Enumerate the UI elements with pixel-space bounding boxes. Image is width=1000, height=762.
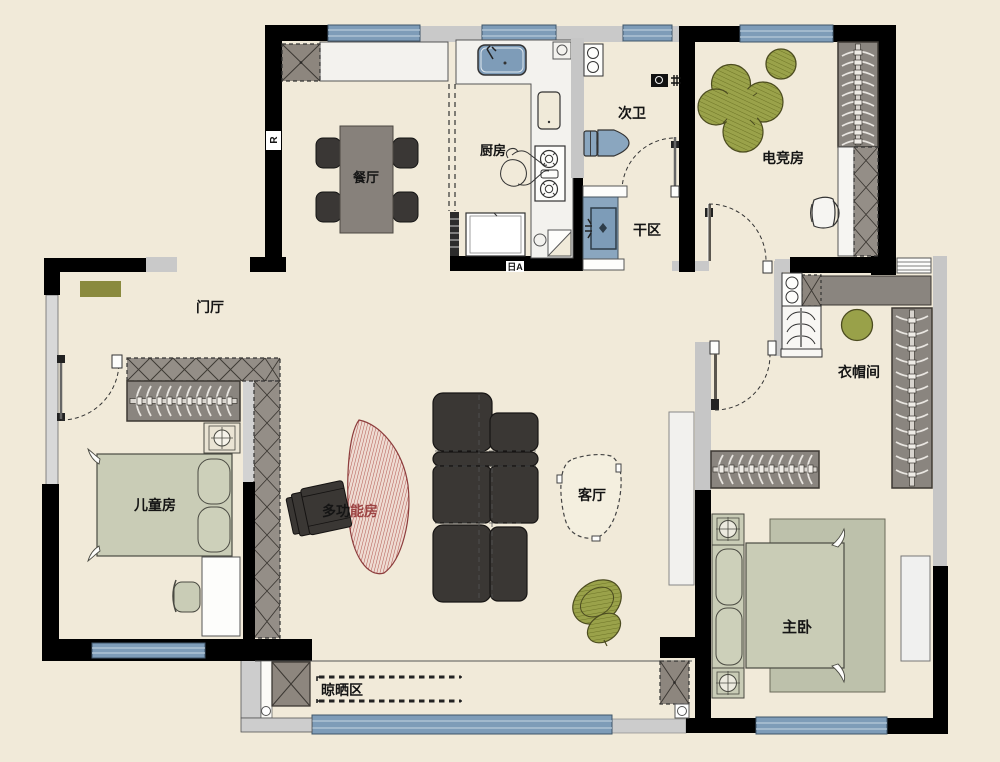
svg-text:儿童房: 儿童房 xyxy=(133,497,176,513)
svg-text:厨房: 厨房 xyxy=(480,143,506,158)
svg-text:主卧: 主卧 xyxy=(782,618,812,636)
svg-text:客厅: 客厅 xyxy=(577,487,606,503)
svg-text:餐厅: 餐厅 xyxy=(352,170,379,185)
svg-text:干区: 干区 xyxy=(633,222,661,238)
svg-text:日A: 日A xyxy=(507,262,523,272)
svg-text:多功能房: 多功能房 xyxy=(322,503,378,519)
svg-text:衣帽间: 衣帽间 xyxy=(838,364,880,380)
svg-text:门厅: 门厅 xyxy=(196,299,224,315)
svg-text:电竞房: 电竞房 xyxy=(762,150,804,166)
svg-text:晾晒区: 晾晒区 xyxy=(321,682,363,698)
svg-text:次卫: 次卫 xyxy=(618,105,646,121)
svg-text:R: R xyxy=(269,136,280,144)
